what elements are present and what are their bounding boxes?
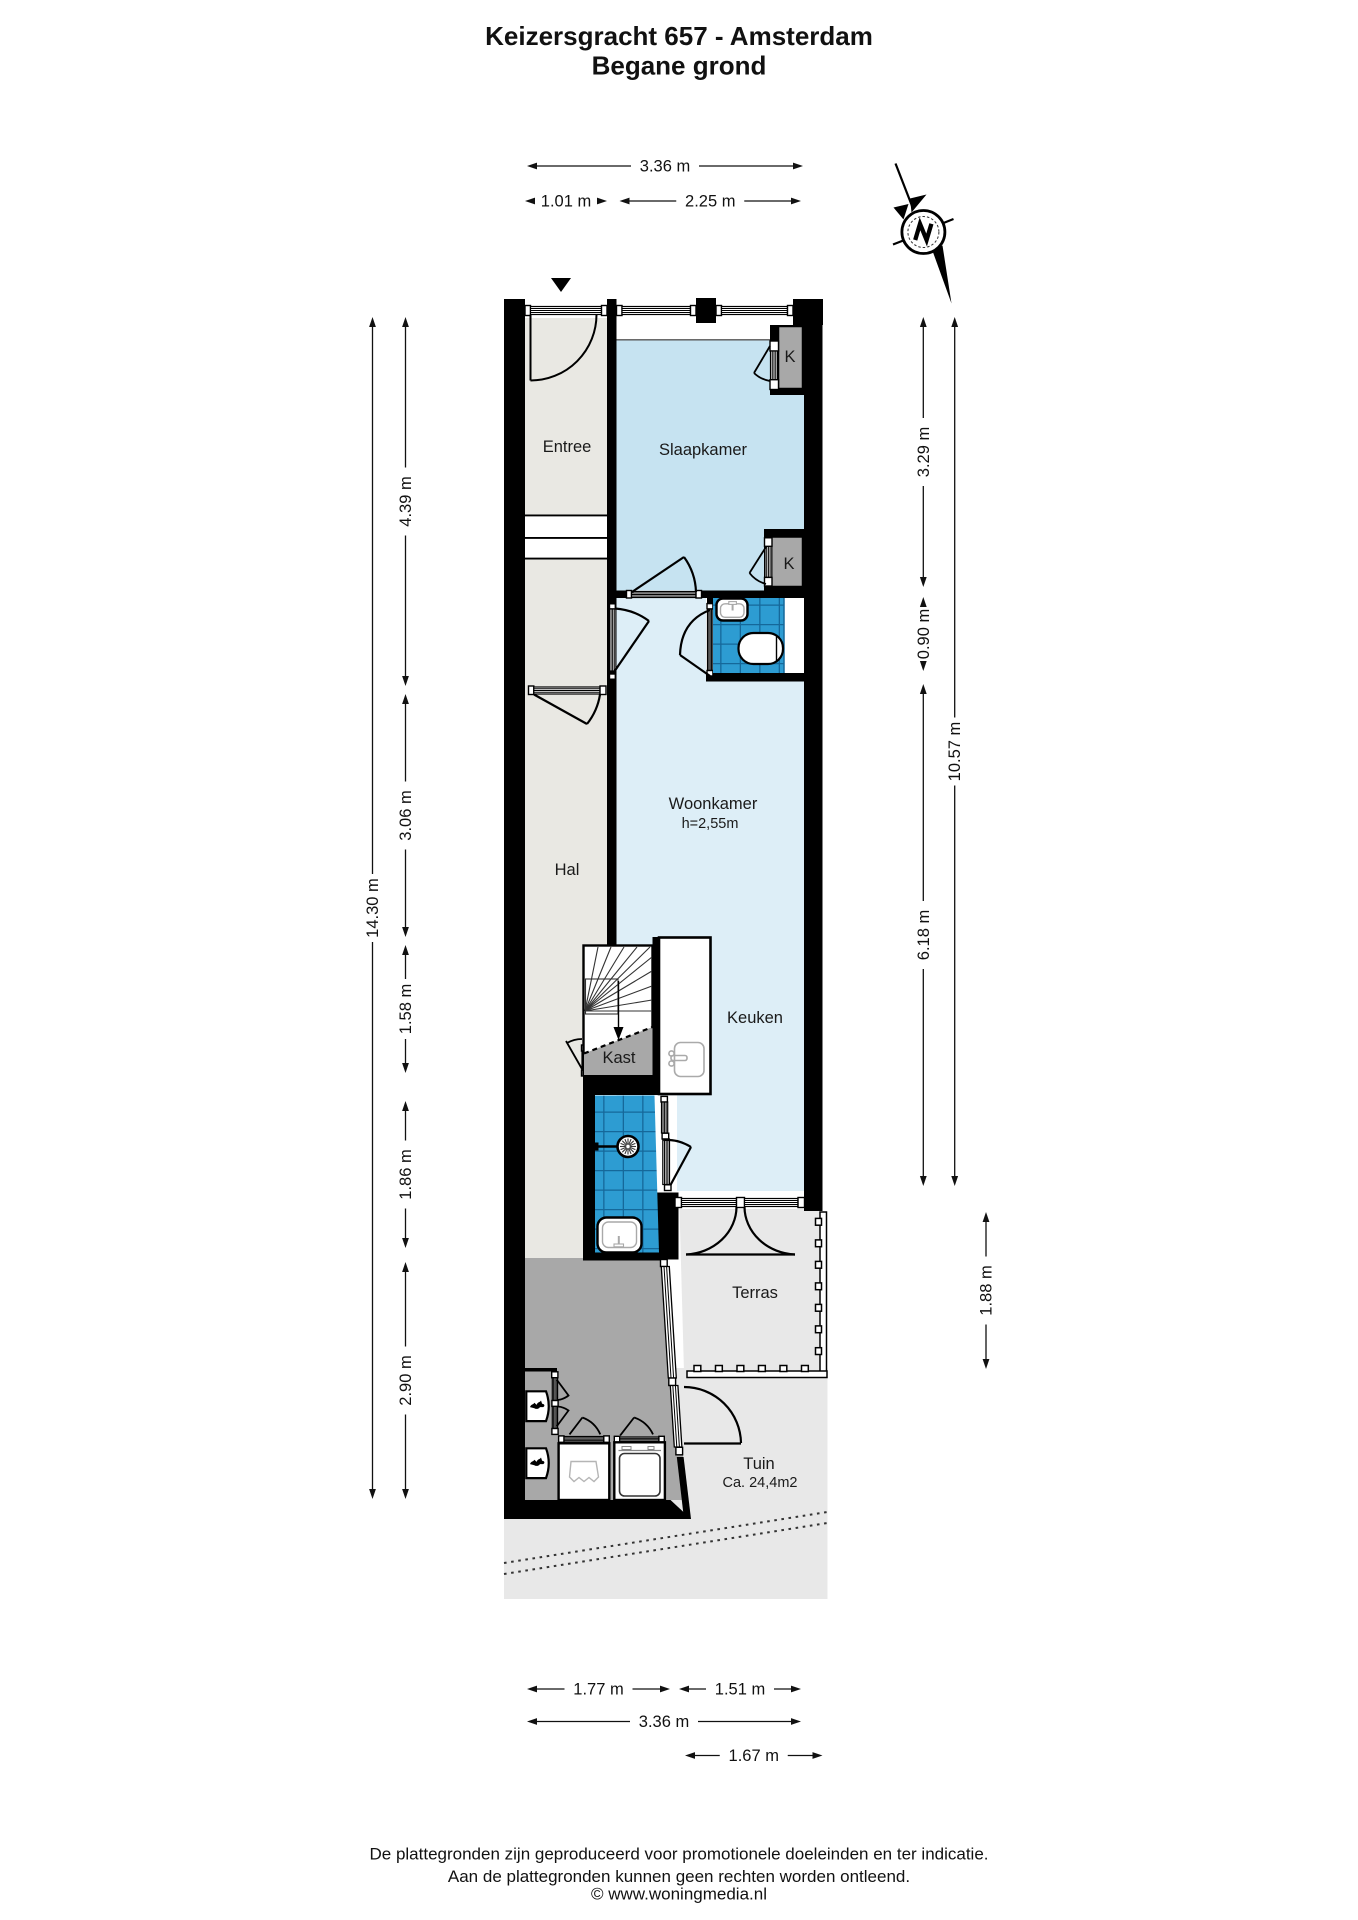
svg-text:Hal: Hal [555,861,580,879]
svg-text:2.25 m: 2.25 m [685,193,735,211]
svg-text:1.88 m: 1.88 m [978,1265,996,1315]
svg-text:Kast: Kast [602,1049,635,1067]
svg-text:Keizersgracht 657 - Amsterdam: Keizersgracht 657 - Amsterdam [485,21,873,51]
svg-text:Entree: Entree [543,438,592,456]
svg-text:14.30 m: 14.30 m [364,878,382,938]
svg-text:1.86 m: 1.86 m [397,1149,415,1199]
svg-text:3.36 m: 3.36 m [640,158,690,176]
svg-text:Begane grond: Begane grond [592,51,767,81]
svg-text:© www.woningmedia.nl: © www.woningmedia.nl [591,1885,767,1904]
svg-text:6.18 m: 6.18 m [915,910,933,960]
svg-text:Tuin: Tuin [743,1455,775,1473]
svg-text:2.90 m: 2.90 m [397,1355,415,1405]
svg-text:1.51 m: 1.51 m [715,1681,765,1699]
svg-text:Woonkamer: Woonkamer [669,795,758,813]
svg-text:Slaapkamer: Slaapkamer [659,441,748,459]
svg-text:h=2,55m: h=2,55m [682,816,739,832]
svg-text:1.58 m: 1.58 m [397,984,415,1034]
svg-text:Ca. 24,4m2: Ca. 24,4m2 [723,1475,798,1491]
svg-text:3.36 m: 3.36 m [639,1713,689,1731]
svg-text:1.77 m: 1.77 m [573,1681,623,1699]
svg-text:3.29 m: 3.29 m [915,427,933,477]
svg-text:4.39 m: 4.39 m [397,476,415,526]
svg-text:Keuken: Keuken [727,1009,783,1027]
svg-text:1.01 m: 1.01 m [541,193,591,211]
svg-text:Terras: Terras [732,1284,778,1302]
svg-text:3.06 m: 3.06 m [397,790,415,840]
svg-text:De plattegronden zijn geproduc: De plattegronden zijn geproduceerd voor … [369,1845,988,1864]
svg-text:1.67 m: 1.67 m [729,1747,779,1765]
svg-text:K: K [783,555,794,573]
svg-text:10.57 m: 10.57 m [946,722,964,782]
svg-text:K: K [784,348,795,366]
svg-text:0.90 m: 0.90 m [915,609,933,659]
svg-text:Aan de plattegronden kunnen ge: Aan de plattegronden kunnen geen rechten… [448,1867,910,1886]
